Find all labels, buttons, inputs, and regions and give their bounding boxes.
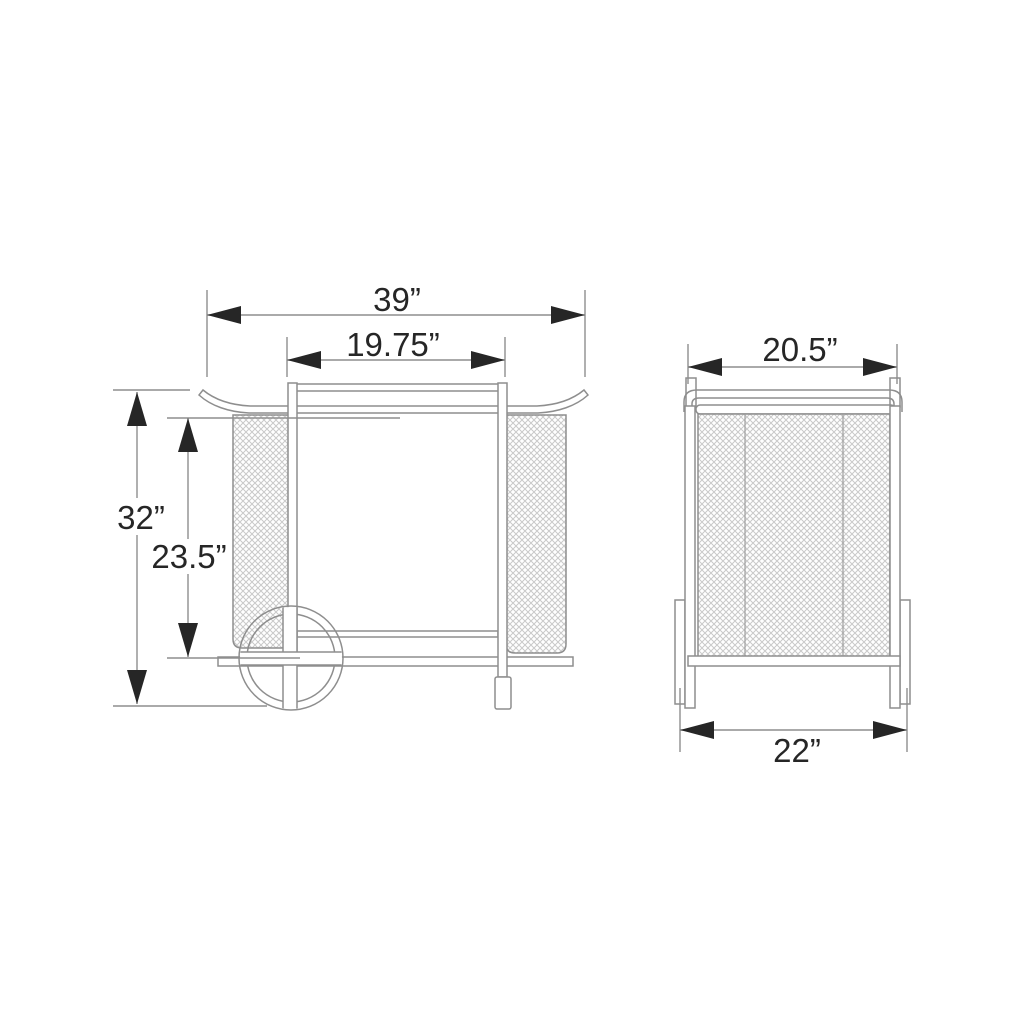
dim-top-inner-width-label: 19.75” (346, 326, 440, 363)
side-post-right (498, 383, 507, 677)
arrowhead-down (127, 670, 147, 704)
side-caster-foot (495, 677, 511, 709)
dim-end-top-width: 20.5” (688, 331, 897, 384)
side-mesh-panel-right (506, 415, 566, 653)
end-view (675, 378, 910, 708)
side-view (199, 383, 588, 711)
dim-top-inner-width: 19.75” (287, 326, 505, 377)
side-gallery-rail (292, 384, 503, 391)
dim-overall-height-label: 32” (117, 499, 165, 536)
arrowhead-up (178, 418, 198, 452)
end-tray-lip (696, 405, 895, 414)
dimension-drawing-canvas: 39” 19.75” 32” (0, 0, 1024, 1024)
side-mesh-panel-left (233, 415, 290, 648)
dim-overall-width-label: 39” (373, 281, 421, 318)
arrowhead-right (551, 306, 585, 324)
arrowhead-right (873, 721, 907, 739)
end-rear-leg-right (900, 600, 910, 704)
technical-drawing-page: 39” 19.75” 32” (0, 0, 1024, 1024)
arrowhead-up (127, 392, 147, 426)
arrowhead-left (688, 358, 722, 376)
side-top-tray (199, 390, 588, 413)
arrowhead-down (178, 623, 198, 657)
arrowhead-right (863, 358, 897, 376)
dim-end-base-width-label: 22” (773, 732, 821, 769)
arrowhead-right (471, 351, 505, 369)
arrowhead-left (207, 306, 241, 324)
dim-undershelf-height-label: 23.5” (151, 538, 226, 575)
arrowhead-left (287, 351, 321, 369)
end-bottom-shelf (688, 656, 900, 666)
end-mesh-panel (698, 414, 890, 657)
dim-end-top-width-label: 20.5” (762, 331, 837, 368)
arrowhead-left (680, 721, 714, 739)
dim-end-base-width: 22” (680, 688, 907, 769)
